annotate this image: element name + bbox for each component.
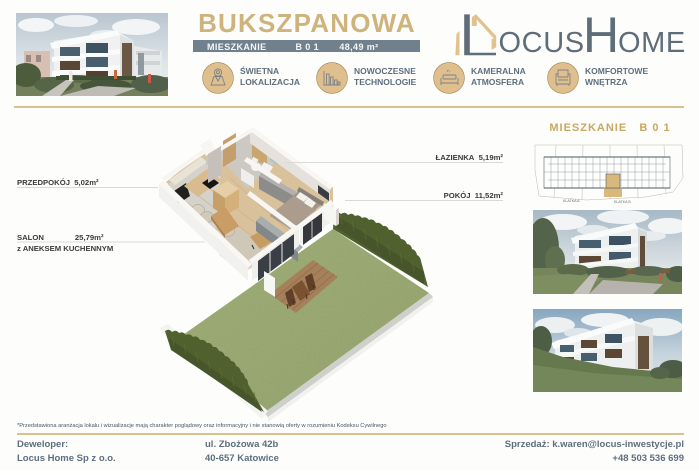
svg-text:KLATKA B: KLATKA B <box>614 200 631 204</box>
svg-text:KLATKA A: KLATKA A <box>563 199 580 203</box>
